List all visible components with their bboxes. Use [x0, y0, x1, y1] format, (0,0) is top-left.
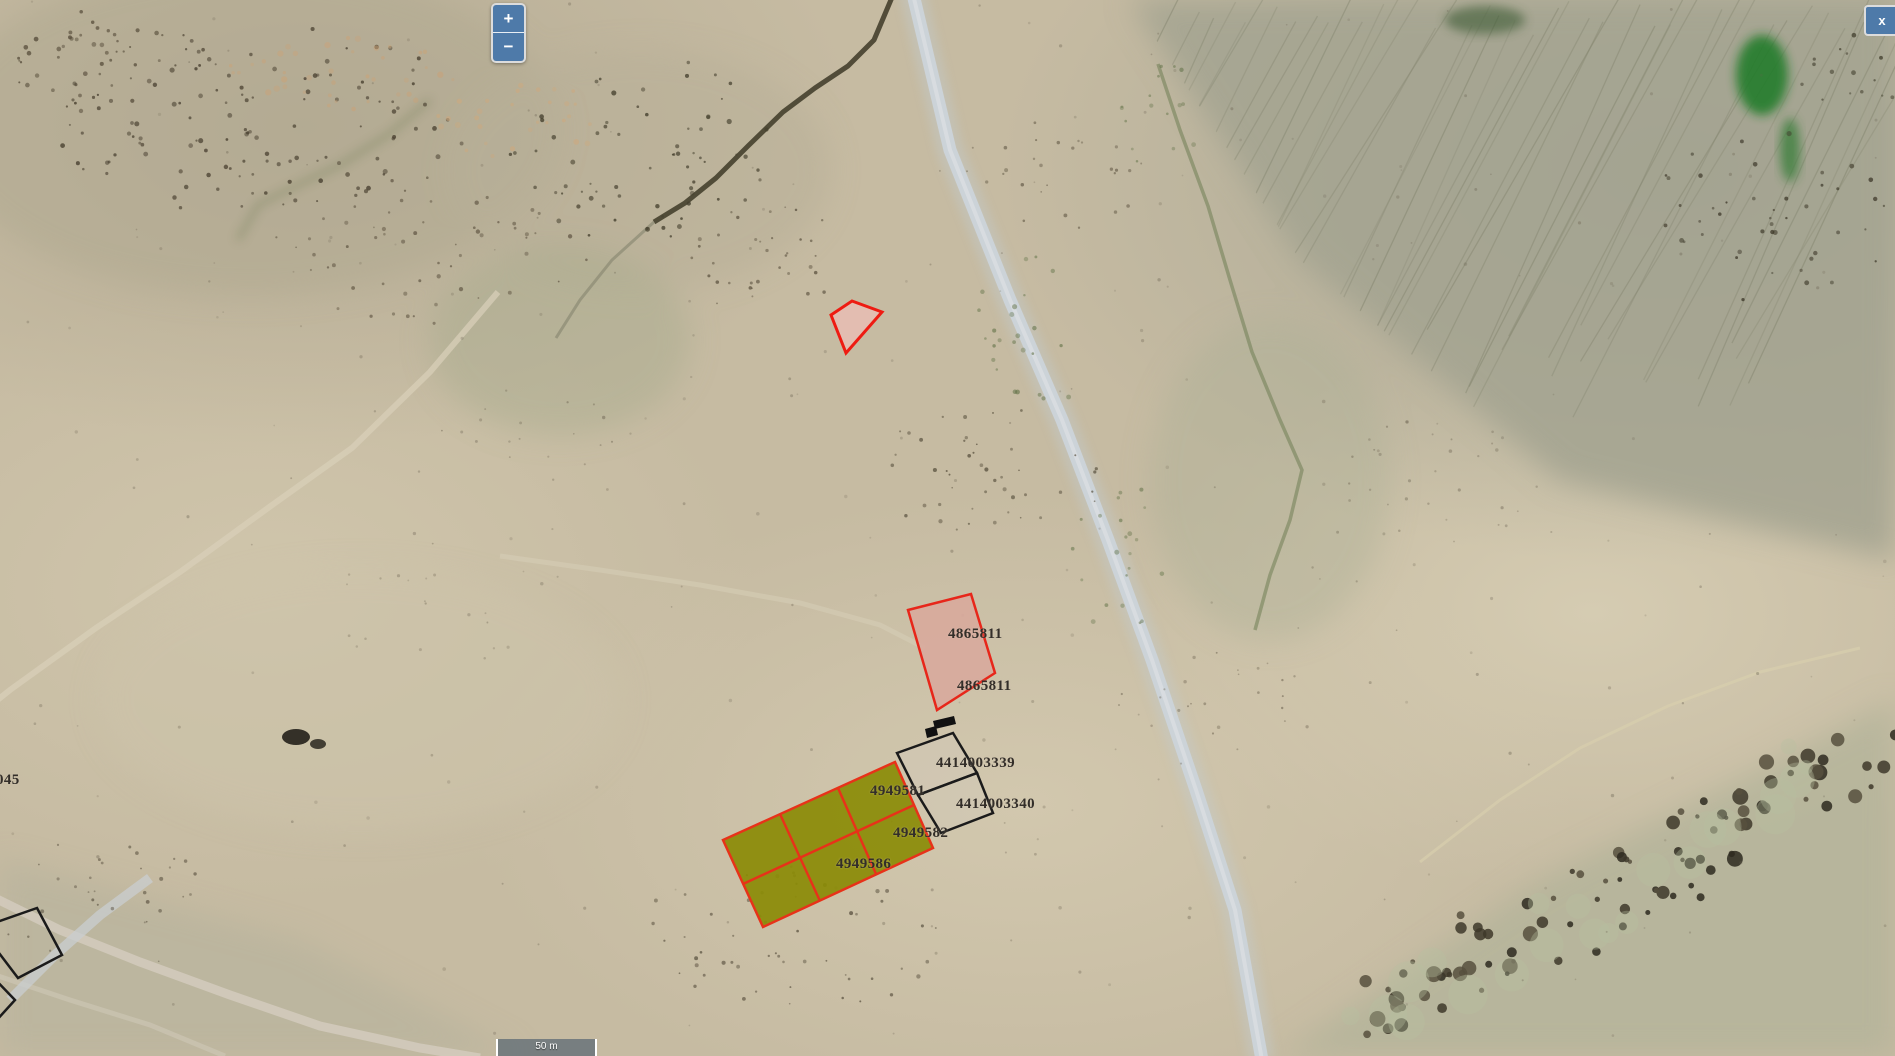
scale-bar-label: 50 m [535, 1041, 557, 1052]
zoom-out-button[interactable]: − [493, 33, 524, 61]
structure-black-bar [933, 716, 956, 729]
map-canvas[interactable]: 4865811 4865811 4414003339 4414003340 49… [0, 0, 1895, 1056]
parcel-black-edge[interactable] [0, 908, 62, 978]
parcel-olive-group[interactable] [723, 762, 933, 927]
zoom-control: + − [491, 3, 526, 63]
parcel-overlay-layer [0, 0, 1895, 1056]
layers-close-button[interactable]: x [1864, 5, 1895, 36]
parcel-red-square[interactable] [831, 301, 882, 353]
parcel-black-edge-2[interactable] [0, 972, 15, 1022]
parcel-pink[interactable] [908, 594, 995, 710]
scale-bar: 50 m [496, 1039, 597, 1056]
zoom-in-button[interactable]: + [493, 5, 524, 33]
structure-black-bar [925, 726, 938, 738]
